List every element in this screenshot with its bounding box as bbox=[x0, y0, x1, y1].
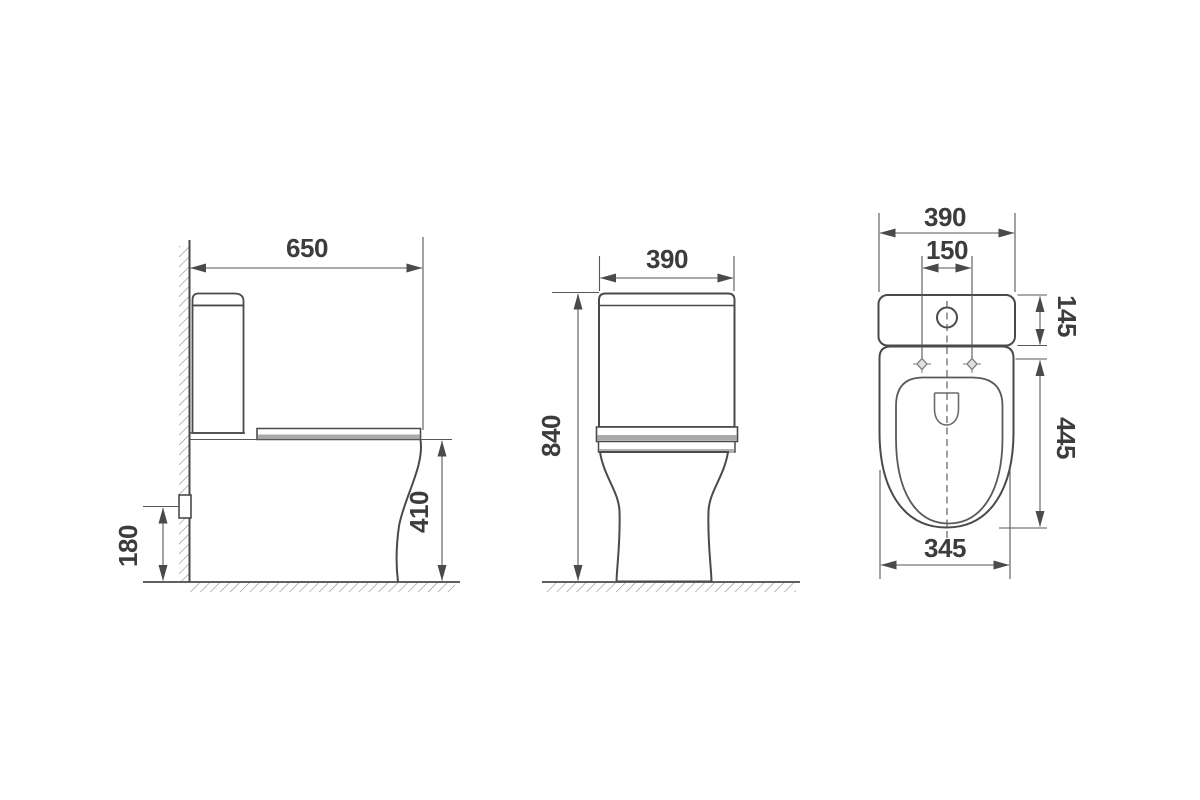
pedestal-front bbox=[600, 452, 728, 582]
floor-hatch-side bbox=[190, 583, 455, 592]
dim-label-840: 840 bbox=[536, 415, 566, 457]
cistern-lid-side bbox=[193, 294, 244, 306]
dim-label-390-front: 390 bbox=[646, 244, 688, 274]
cistern-body-side bbox=[193, 306, 244, 434]
wall-hatch bbox=[179, 246, 189, 582]
dim-label-150: 150 bbox=[926, 235, 968, 265]
dim-label-650: 650 bbox=[286, 233, 328, 263]
dim-label-390-top: 390 bbox=[924, 202, 966, 232]
dim-label-180: 180 bbox=[113, 525, 143, 567]
seat-slab-shade-front bbox=[598, 435, 737, 440]
technical-drawing-canvas: 650 410 180 390 840 bbox=[0, 0, 1200, 800]
toilet-dimension-drawing: 650 410 180 390 840 bbox=[0, 0, 1200, 800]
dim-label-145: 145 bbox=[1052, 295, 1082, 337]
seat-slab-shade bbox=[258, 435, 420, 439]
dim-label-410: 410 bbox=[404, 491, 434, 533]
floor-hatch-front bbox=[546, 583, 796, 592]
dim-label-345: 345 bbox=[924, 533, 966, 563]
cistern-front bbox=[599, 294, 735, 428]
dim-label-445: 445 bbox=[1051, 417, 1081, 459]
outlet-box bbox=[179, 495, 191, 518]
